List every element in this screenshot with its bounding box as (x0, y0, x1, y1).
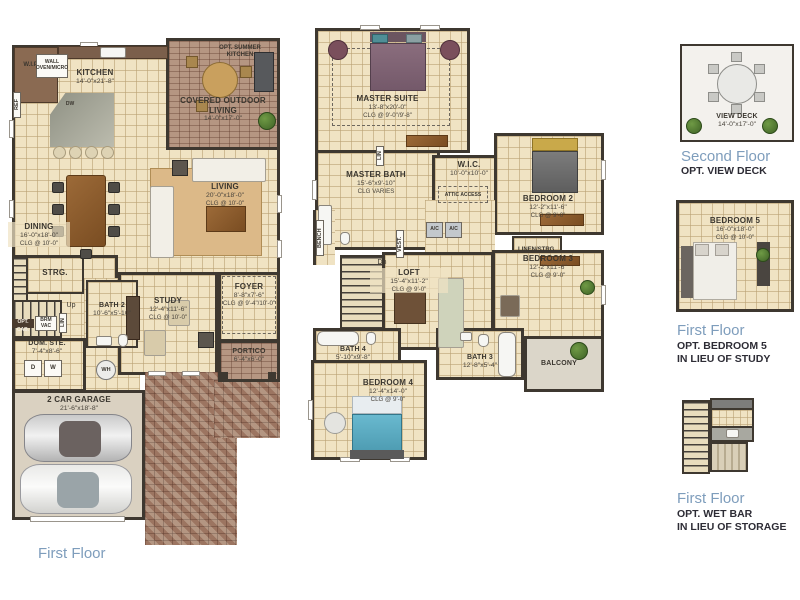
bathtub (317, 331, 359, 346)
water-heater: WH (96, 360, 116, 380)
pillow (406, 34, 422, 43)
balcony-label: BALCONY (528, 360, 590, 368)
brm-vac-text: BRM VAC (36, 318, 56, 330)
window (277, 240, 282, 258)
armchair (328, 40, 348, 60)
stool (69, 146, 82, 159)
deck-chair (731, 52, 742, 62)
portico-name: PORTICO (220, 348, 278, 356)
loft-name: LOFT (370, 268, 448, 278)
living-label: LIVING 20'-0"x18'-0" CLG @ 10'-0" (185, 182, 265, 207)
bed-pillows (532, 138, 578, 151)
deck-chair (708, 64, 719, 74)
bedroom3-label: BEDROOM 3 12'-2"x11'-6" CLG @ 9'-0" (504, 254, 592, 279)
study-armchair (144, 330, 166, 356)
toilet (366, 332, 376, 345)
bedroom3-dims: 12'-2"x11'-6" (504, 264, 592, 272)
bath4-dims: 5'-10"x9'-8" (322, 354, 384, 362)
bedroom5-dims: 16'-0"x18'-0" (688, 226, 782, 234)
window (277, 195, 282, 213)
view-deck-opt-caption: OPT. VIEW DECK (681, 165, 767, 179)
living-name: LIVING (185, 182, 265, 192)
sofa (150, 186, 174, 258)
study-side-table (198, 332, 214, 348)
lin-text: LIN (60, 319, 66, 328)
bench-text: BENCH (317, 228, 323, 248)
loft-clg: CLG @ 9'-0" (370, 286, 448, 293)
deck-chair (754, 92, 765, 102)
lin2-text: LIN (377, 152, 383, 161)
ac-unit: A/C (445, 222, 462, 238)
bedroom5-opt2-caption: IN LIEU OF STUDY (677, 353, 770, 367)
bath4-label: BATH 4 5'-10"x9'-8" (322, 346, 384, 363)
window (308, 400, 313, 420)
armchair (440, 40, 460, 60)
dw-text: DW (66, 102, 74, 108)
view-deck-dims: 14'-0"x17'-0" (700, 121, 774, 129)
floor-plan-sheet: WH D W W.I.P. WALL OVEN/MICRO REF DW KIT… (0, 0, 800, 600)
window (312, 180, 317, 200)
bath3-dims: 12'-8"x5'-4" (446, 362, 514, 370)
car (20, 464, 132, 514)
dining-chair (108, 182, 120, 193)
toilet (478, 334, 489, 347)
deck-chair (754, 64, 765, 74)
range (100, 47, 126, 58)
patio-chair (240, 66, 252, 78)
wet-bar-upper-cabinet (710, 398, 754, 410)
balcony-name: BALCONY (528, 360, 590, 368)
wet-bar-stairs (682, 400, 710, 474)
bed-footboard (350, 450, 404, 459)
stool (101, 146, 114, 159)
window (601, 285, 606, 305)
bedroom5-floor-caption: First Floor (677, 322, 745, 339)
portico-dims: 6'-4"x6'-0" (220, 356, 278, 364)
bench-label: BENCH (316, 220, 324, 256)
toilet (118, 334, 128, 347)
dn-label: Dn (370, 259, 394, 267)
window (148, 371, 166, 376)
stool (53, 146, 66, 159)
loft-dims: 15'-4"x11'-2" (370, 278, 448, 286)
pillow (372, 34, 388, 43)
dw-label: DW (62, 100, 78, 109)
living-dims: 20'-0"x18'-0" (185, 192, 265, 200)
master-suite-name: MASTER SUITE (330, 94, 445, 104)
round-chair (324, 412, 346, 434)
bedroom2-name: BEDROOM 2 (504, 194, 592, 204)
washer-label: W (50, 365, 56, 372)
plant-icon (570, 342, 588, 360)
wic-name: W.I.C. (430, 160, 508, 170)
deck-chair (708, 92, 719, 102)
sink (460, 332, 472, 341)
deck-table (717, 64, 757, 104)
dining-chair (52, 204, 64, 215)
wet-bar-opt-caption: OPT. WET BAR (677, 508, 752, 522)
bath3-label: BATH 3 12'-8"x5'-4" (446, 354, 514, 371)
up-text: Up (60, 302, 82, 310)
ac-text: A/C (449, 227, 458, 233)
stairs-up-flight1 (12, 256, 28, 302)
bed-headboard (681, 246, 693, 298)
living-clg: CLG @ 10'-0" (185, 200, 265, 207)
sofa (192, 158, 266, 182)
toilet (340, 232, 350, 245)
plant-icon (756, 248, 770, 262)
bed (532, 151, 578, 193)
wet-bar-floor-caption: First Floor (677, 490, 745, 507)
ac-unit: A/C (426, 222, 443, 238)
washer: W (44, 360, 62, 377)
view-deck-name: VIEW DECK (700, 113, 774, 121)
bedroom2-dims: 12'-2"x11'-6" (504, 204, 592, 212)
ac-text: A/C (430, 227, 439, 233)
front-walk-pavers (214, 380, 280, 438)
covered-outdoor-name: COVERED OUTDOOR LIVING (172, 96, 274, 115)
window (360, 25, 380, 30)
car-cabin (57, 472, 99, 508)
loft-label: LOFT 15'-4"x11'-2" CLG @ 9'-0" (370, 268, 448, 293)
window (9, 200, 14, 218)
car-cabin (59, 421, 101, 457)
foyer-dims: 8'-8"x7'-6" (222, 292, 276, 300)
foyer-clg: CLG @ 9'-4"/10'-0" (222, 300, 276, 307)
coffee-table (206, 206, 246, 232)
bath4-name: BATH 4 (322, 346, 384, 354)
bedroom4-name: BEDROOM 4 (344, 378, 432, 388)
car (24, 414, 132, 462)
pillow (715, 244, 729, 256)
wic-label: W.I.C. 10'-0"x10'-0" (430, 160, 508, 178)
study-clg: CLG @ 10'-0" (128, 314, 208, 321)
master-bath-dims: 15'-6"x9'-10" (322, 180, 430, 188)
window (420, 25, 440, 30)
strg-name: STRG. (26, 268, 84, 278)
window (9, 120, 14, 138)
strg-label: STRG. (26, 268, 84, 278)
master-bath-name: MASTER BATH (322, 170, 430, 180)
bath3-name: BATH 3 (446, 354, 514, 362)
dining-chair (80, 249, 92, 259)
master-suite-clg: CLG @ 9'-0"/9'-8" (330, 112, 445, 119)
bedroom2-label: BEDROOM 2 12'-2"x11'-6" CLG @ 9'-0" (504, 194, 592, 219)
up-label: Up (60, 302, 82, 310)
wet-bar-backsplash (710, 410, 754, 426)
side-table (172, 160, 188, 176)
ref-text: REF (14, 100, 20, 111)
brm-vac-label: BRM VAC (35, 316, 57, 331)
wet-bar-lower-cabinet (710, 442, 748, 472)
dom-ste-label: DOM. STE. 7'-4"x8'-6" (12, 340, 82, 357)
view-deck-floor-caption: Second Floor (681, 148, 770, 165)
bedroom5-label: BEDROOM 5 16'-0"x18'-0" CLG @ 10'-0" (688, 216, 782, 241)
bedroom3-name: BEDROOM 3 (504, 254, 592, 264)
bedroom4-label: BEDROOM 4 12'-4"x14'-0" CLG @ 9'-0" (344, 378, 432, 403)
attic-access-text: ATTIC ACCESS (445, 192, 481, 198)
portico-column (220, 372, 228, 380)
sink (96, 336, 112, 346)
study-label: STUDY 12'-4"x11'-6" CLG @ 10'-0" (128, 296, 208, 321)
opt-cab-text: OPT. CAB. (17, 319, 29, 333)
stool (85, 146, 98, 159)
bedroom4-dims: 12'-4"x14'-0" (344, 388, 432, 396)
bedroom2-clg: CLG @ 9'-0" (504, 212, 592, 219)
dom-ste-name: DOM. STE. (12, 340, 82, 348)
patio-table (202, 62, 238, 98)
opt-summer-kitchen-text: OPT. SUMMER KITCHEN (206, 45, 274, 59)
dining-dims: 16'-0"x18'-0" (8, 232, 70, 240)
master-bed (370, 43, 426, 91)
bedroom3-clg: CLG @ 9'-0" (504, 272, 592, 279)
covered-outdoor-label: COVERED OUTDOOR LIVING 14'-0"x17'-0" (172, 96, 274, 123)
wic-dims: 10'-0"x10'-0" (430, 170, 508, 178)
dresser (406, 135, 448, 147)
plant-icon (580, 280, 595, 295)
bedroom4-clg: CLG @ 9'-0" (344, 396, 432, 403)
wet-bar-sink (726, 429, 739, 438)
kitchen-name: KITCHEN (50, 68, 140, 78)
dining-clg: CLG @ 10'-0" (8, 240, 70, 247)
study-name: STUDY (128, 296, 208, 306)
bedroom5-name: BEDROOM 5 (688, 216, 782, 226)
vest-label: VEST. (396, 230, 404, 258)
portico-column (268, 372, 276, 380)
dom-ste-dims: 7'-4"x8'-6" (12, 348, 82, 356)
garage-dims: 21'-6"x18'-8" (18, 405, 140, 413)
garage-label: 2 CAR GARAGE 21'-6"x18'-8" (18, 395, 140, 413)
kitchen-dims: 14'-0"x21'-8" (50, 78, 140, 86)
garage-door (30, 516, 125, 522)
window (182, 371, 200, 376)
portico-label: PORTICO 6'-4"x6'-0" (220, 348, 278, 365)
foyer-name: FOYER (222, 282, 276, 292)
bed (352, 414, 402, 452)
bedroom5-opt-caption: OPT. BEDROOM 5 (677, 340, 767, 354)
vest-text: VEST. (397, 236, 403, 251)
master-bath-clg: CLG VARIES (322, 188, 430, 195)
dining-chair (108, 204, 120, 215)
opt-summer-kitchen-label: OPT. SUMMER KITCHEN (206, 45, 274, 59)
master-suite-dims: 13'-8"x20'-0" (330, 104, 445, 112)
dining-table (66, 175, 106, 247)
covered-outdoor-dims: 14'-0"x17'-0" (172, 115, 274, 123)
wet-bar-opt2-caption: IN LIEU OF STORAGE (677, 521, 786, 535)
dining-label: DINING 16'-0"x18'-0" CLG @ 10'-0" (8, 222, 70, 247)
dryer-label: D (31, 365, 35, 372)
pillow (695, 244, 709, 256)
opt-cab-label: OPT. CAB. (12, 319, 34, 328)
kitchen-label: KITCHEN 14'-0"x21'-8" (50, 68, 140, 86)
master-suite-label: MASTER SUITE 13'-8"x20'-0" CLG @ 9'-0"/9… (330, 94, 445, 119)
lin-closet-label: LIN (59, 313, 67, 333)
loft-rug (394, 292, 426, 324)
window (601, 160, 606, 180)
water-heater-label: WH (101, 367, 110, 373)
view-deck-label: VIEW DECK 14'-0"x17'-0" (700, 113, 774, 130)
ref-label: REF (13, 92, 21, 118)
attic-access-label: ATTIC ACCESS (438, 186, 488, 203)
dining-chair (108, 226, 120, 237)
patio-chair (186, 56, 198, 68)
lin2-label: LIN (376, 146, 384, 166)
dn-text: Dn (370, 259, 394, 267)
dryer: D (24, 360, 42, 377)
dining-chair (52, 182, 64, 193)
foyer-label: FOYER 8'-8"x7'-6" CLG @ 9'-4"/10'-0" (222, 282, 276, 307)
armchair (500, 295, 520, 317)
bedroom5-clg: CLG @ 10'-0" (688, 234, 782, 241)
dining-name: DINING (8, 222, 70, 232)
master-bath-label: MASTER BATH 15'-6"x9'-10" CLG VARIES (322, 170, 430, 195)
garage-name: 2 CAR GARAGE (18, 395, 140, 405)
first-floor-caption: First Floor (38, 545, 106, 562)
study-dims: 12'-4"x11'-6" (128, 306, 208, 314)
